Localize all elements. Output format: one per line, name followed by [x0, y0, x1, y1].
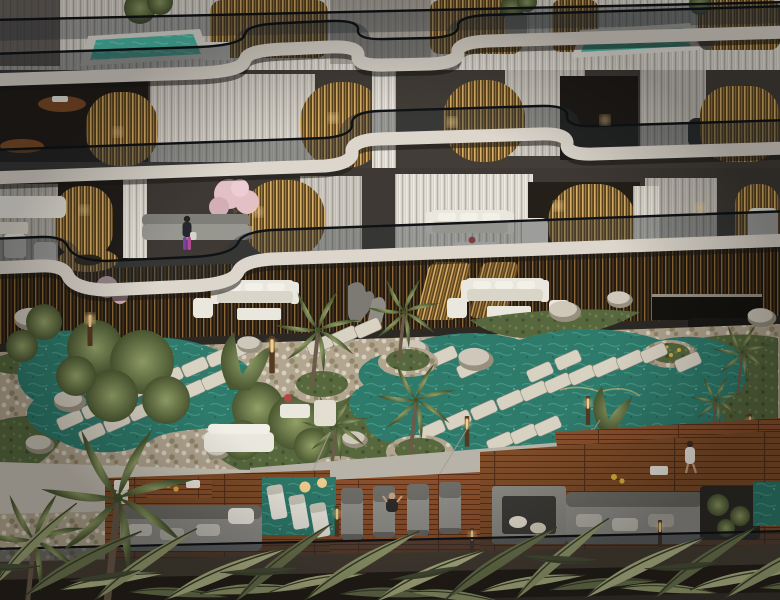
vignette: [0, 0, 780, 600]
architectural-render: Aerial dusk view of a luxury residential…: [0, 0, 780, 600]
render-canvas: Aerial dusk view of a luxury residential…: [0, 0, 780, 600]
